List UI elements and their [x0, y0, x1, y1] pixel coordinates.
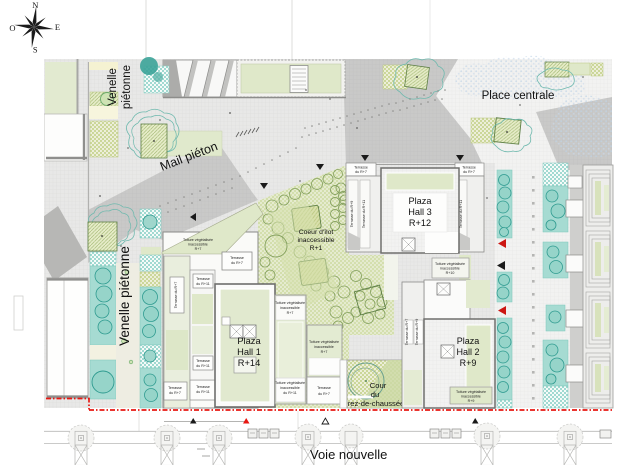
svg-text:Venelle: Venelle	[107, 68, 119, 106]
svg-text:du R+7: du R+7	[318, 392, 330, 396]
svg-text:Coeur d'îlot: Coeur d'îlot	[299, 229, 334, 236]
svg-text:du R+11: du R+11	[196, 390, 209, 394]
svg-text:du R+11: du R+11	[196, 282, 209, 286]
svg-text:Cour: Cour	[370, 381, 387, 390]
svg-text:Terrasse du R+7: Terrasse du R+7	[174, 282, 178, 308]
svg-text:du: du	[371, 390, 379, 399]
svg-text:R+9: R+9	[460, 358, 477, 368]
svg-text:inaccessible: inaccessible	[280, 386, 300, 390]
svg-text:Terrasse: Terrasse	[196, 277, 210, 281]
svg-text:du R+7: du R+7	[231, 261, 243, 265]
svg-text:rez-de-chaussée: rez-de-chaussée	[348, 399, 405, 408]
svg-text:Terrasse: Terrasse	[462, 166, 476, 170]
svg-text:piétonne: piétonne	[121, 65, 133, 109]
svg-text:S: S	[33, 45, 38, 55]
svg-text:inaccessible: inaccessible	[461, 395, 481, 399]
svg-text:inaccessible: inaccessible	[440, 267, 460, 271]
svg-text:Toiture végétalisée: Toiture végétalisée	[456, 390, 486, 394]
svg-text:O: O	[9, 23, 15, 33]
svg-text:R+12: R+12	[409, 218, 431, 228]
svg-text:du R+7: du R+7	[463, 170, 475, 174]
svg-text:Place centrale: Place centrale	[482, 90, 555, 102]
svg-text:Plaza: Plaza	[409, 196, 433, 206]
svg-text:inaccessible: inaccessible	[297, 237, 334, 244]
svg-text:du R+11: du R+11	[196, 364, 209, 368]
svg-text:R+7: R+7	[287, 311, 294, 315]
svg-text:R+7: R+7	[195, 247, 202, 251]
svg-text:Toiture végétalisée: Toiture végétalisée	[275, 381, 305, 385]
svg-text:Toiture végétalisée: Toiture végétalisée	[275, 301, 305, 305]
svg-text:Terrasse: Terrasse	[196, 385, 210, 389]
svg-text:Toiture végétalisée: Toiture végétalisée	[183, 238, 213, 242]
svg-text:Terrasse: Terrasse	[354, 166, 368, 170]
svg-text:Terrasse: Terrasse	[317, 386, 331, 390]
svg-text:Toiture végétalisée: Toiture végétalisée	[435, 262, 465, 266]
svg-text:du R+11: du R+11	[283, 391, 296, 395]
svg-text:Terrasse du R+9: Terrasse du R+9	[350, 201, 354, 227]
svg-text:Hall 3: Hall 3	[408, 207, 432, 217]
svg-text:Venelle piétonne: Venelle piétonne	[117, 246, 132, 346]
svg-text:N: N	[32, 0, 38, 10]
svg-text:R+10: R+10	[446, 271, 455, 275]
svg-text:Toiture végétalisée: Toiture végétalisée	[309, 340, 339, 344]
svg-text:inaccessible: inaccessible	[188, 243, 208, 247]
svg-text:Voie nouvelle: Voie nouvelle	[310, 447, 387, 462]
svg-text:du R+7: du R+7	[355, 170, 367, 174]
svg-text:Terrasse: Terrasse	[196, 359, 210, 363]
svg-text:R+9: R+9	[468, 399, 475, 403]
svg-text:R+7: R+7	[321, 350, 328, 354]
svg-text:R+14: R+14	[238, 358, 260, 368]
svg-text:Terrasse du R+7: Terrasse du R+7	[405, 319, 409, 345]
svg-text:du R+7: du R+7	[169, 391, 181, 395]
svg-text:Terrasse du R+11: Terrasse du R+11	[362, 200, 366, 228]
svg-text:Plaza: Plaza	[237, 336, 261, 346]
svg-text:inaccessible: inaccessible	[280, 306, 300, 310]
svg-text:Terrasse: Terrasse	[168, 386, 182, 390]
svg-text:Hall 1: Hall 1	[237, 347, 261, 357]
svg-text:R+1: R+1	[310, 245, 323, 252]
svg-text:Hall 2: Hall 2	[456, 347, 479, 357]
svg-text:Terrasse du R+9: Terrasse du R+9	[415, 319, 419, 345]
svg-text:E: E	[55, 22, 60, 32]
svg-text:inaccessible: inaccessible	[314, 345, 334, 349]
svg-text:Terrasse: Terrasse	[230, 256, 244, 260]
svg-text:Plaza: Plaza	[457, 336, 480, 346]
